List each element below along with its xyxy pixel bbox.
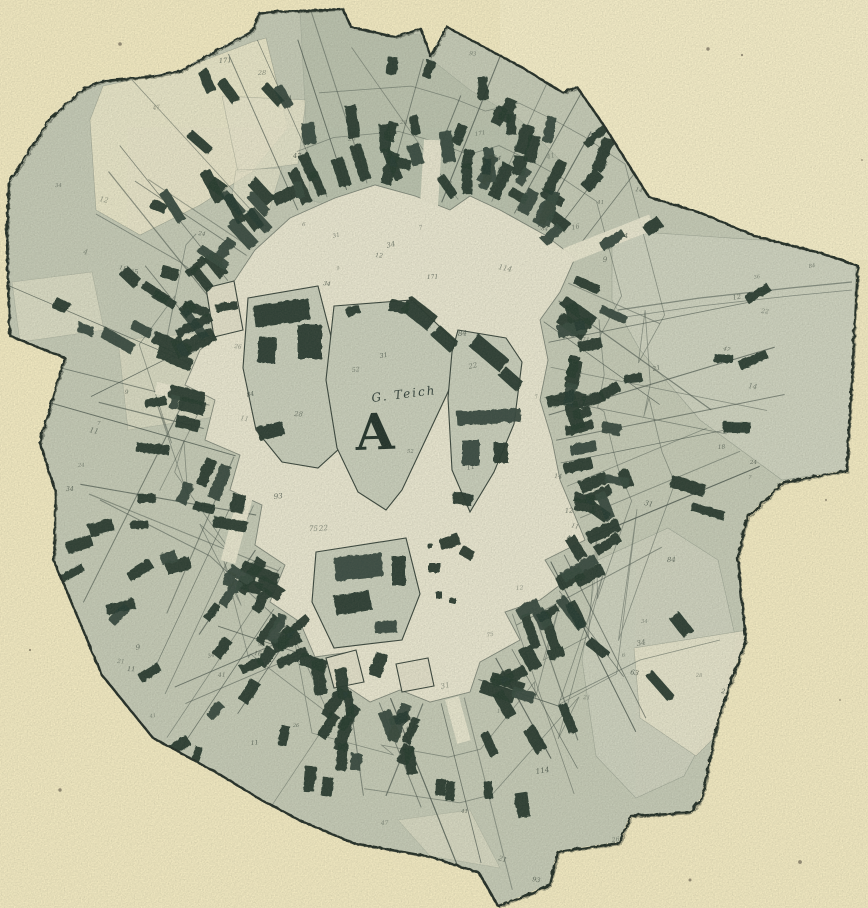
paper-speck — [706, 47, 709, 50]
paper-grain-overlay — [0, 0, 868, 908]
paper-speck — [861, 159, 863, 161]
paper-speck — [741, 54, 743, 56]
paper-speck — [118, 42, 122, 46]
paper-speck — [29, 649, 31, 651]
paper-speck — [798, 860, 802, 864]
paper-speck — [825, 499, 827, 501]
scanned-map-page: { "figure": { "kind": "historical villag… — [0, 0, 868, 908]
paper-speck — [58, 788, 61, 791]
paper-speck — [689, 879, 692, 882]
paper-speck — [839, 699, 841, 701]
village-map: 9312263416931411417111278434474121344223… — [0, 0, 868, 908]
